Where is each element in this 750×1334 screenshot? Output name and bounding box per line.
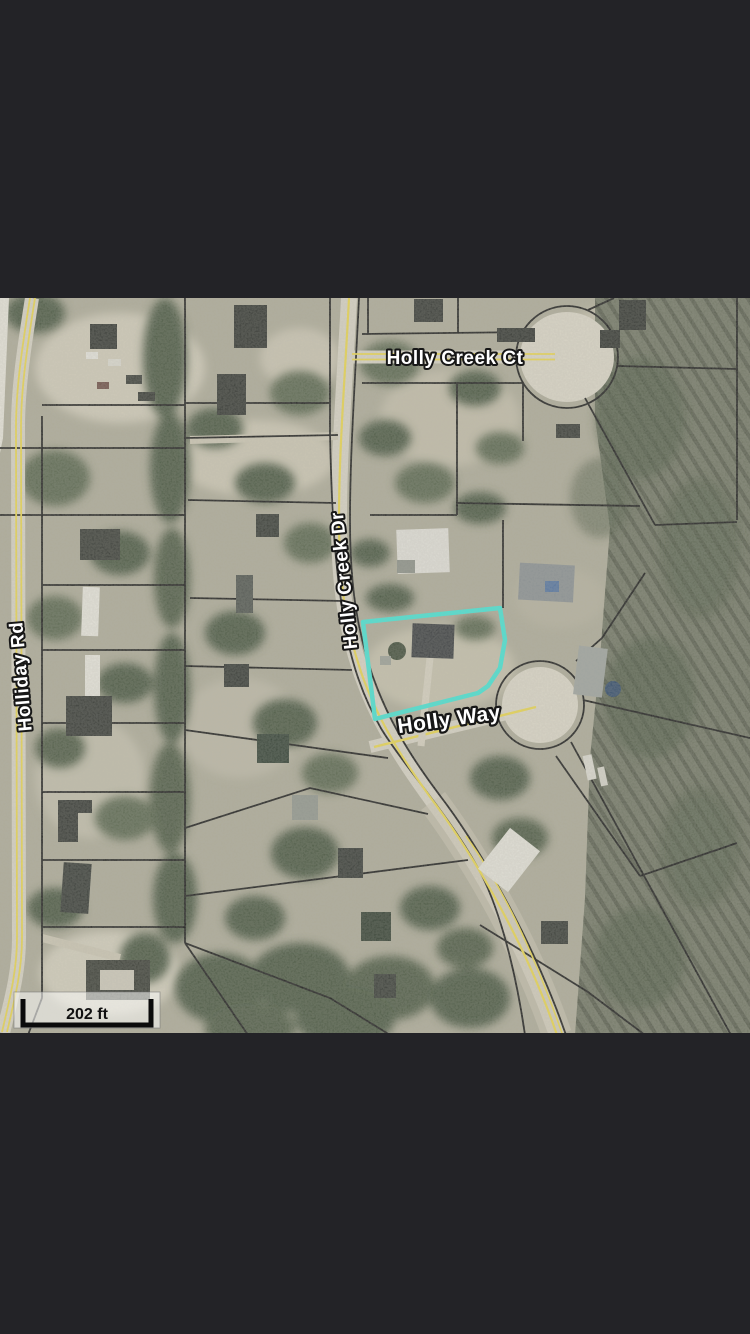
photo-grain-overlay <box>0 298 750 1033</box>
phone-screenshot: Holly Creek Ct Holly Creek Dr Holliday R… <box>0 0 750 1334</box>
letterbox-bottom <box>0 1033 750 1334</box>
scale-bar-label: 202 ft <box>66 1006 108 1023</box>
road-label-holly-creek-ct: Holly Creek Ct <box>387 348 524 369</box>
scale-bar: 202 ft <box>14 992 160 1028</box>
aerial-parcel-map[interactable]: Holly Creek Ct Holly Creek Dr Holliday R… <box>0 298 750 1033</box>
letterbox-top <box>0 0 750 298</box>
